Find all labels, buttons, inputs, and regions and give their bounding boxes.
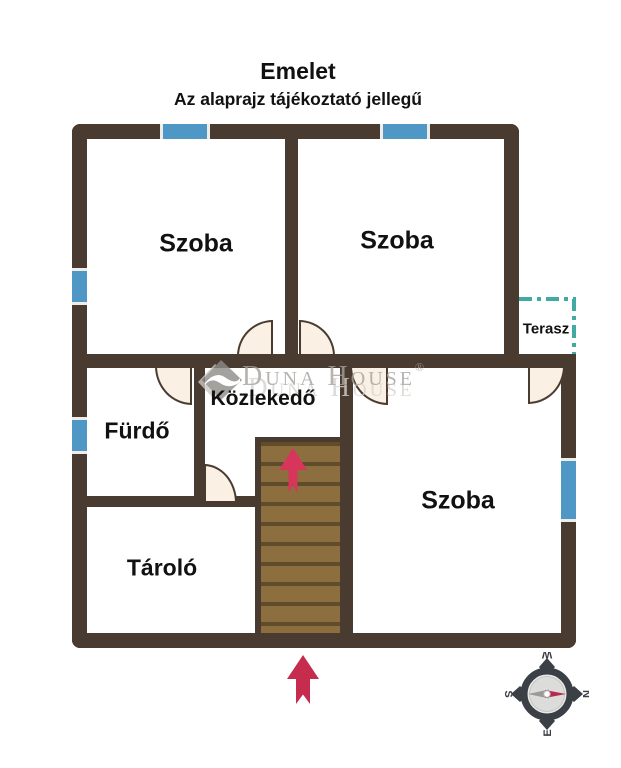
wall-top bbox=[72, 124, 519, 139]
compass-south-label: S bbox=[505, 690, 514, 697]
room-label-furdo: Fürdő bbox=[104, 418, 169, 445]
window-left-bathroom bbox=[72, 417, 87, 454]
window-left-upper bbox=[72, 268, 87, 305]
room-label-tarolo: Tároló bbox=[127, 555, 197, 582]
floor-plan-page: Emelet Az alaprajz tájékoztató jellegű S… bbox=[0, 0, 621, 768]
stairs-up-arrow-icon bbox=[279, 448, 307, 494]
door-terrace bbox=[528, 366, 565, 404]
room-label-szoba-bottom-right: Szoba bbox=[421, 487, 495, 516]
room-label-terasz: Terasz bbox=[523, 321, 569, 338]
window-top-right-room bbox=[380, 124, 430, 139]
page-subtitle: Az alaprajz tájékoztató jellegű bbox=[0, 89, 596, 110]
door-top-left-room bbox=[237, 320, 273, 356]
door-bottom-right-room bbox=[350, 366, 388, 405]
door-top-right-room bbox=[299, 320, 335, 356]
wall-between-top-rooms bbox=[285, 139, 298, 354]
door-bathroom bbox=[155, 366, 192, 405]
wall-bottom bbox=[72, 633, 576, 648]
room-label-kozlekedo: Közlekedő bbox=[210, 387, 315, 411]
compass-west-label: W bbox=[541, 652, 552, 660]
wall-middle-horizontal bbox=[72, 354, 576, 368]
compass-east-label: E bbox=[542, 729, 554, 736]
compass-rose: W N E S bbox=[505, 652, 589, 736]
window-right-bottom-room bbox=[561, 458, 576, 522]
room-label-szoba-top-left: Szoba bbox=[159, 230, 233, 259]
window-top-left-room bbox=[160, 124, 210, 139]
wall-left bbox=[72, 124, 87, 648]
compass-north-label: N bbox=[580, 690, 589, 698]
page-title: Emelet bbox=[0, 58, 596, 85]
wall-stairs-right bbox=[340, 368, 353, 633]
room-label-szoba-top-right: Szoba bbox=[360, 227, 434, 256]
entrance-arrow-icon bbox=[287, 655, 320, 705]
door-storage bbox=[204, 464, 237, 503]
